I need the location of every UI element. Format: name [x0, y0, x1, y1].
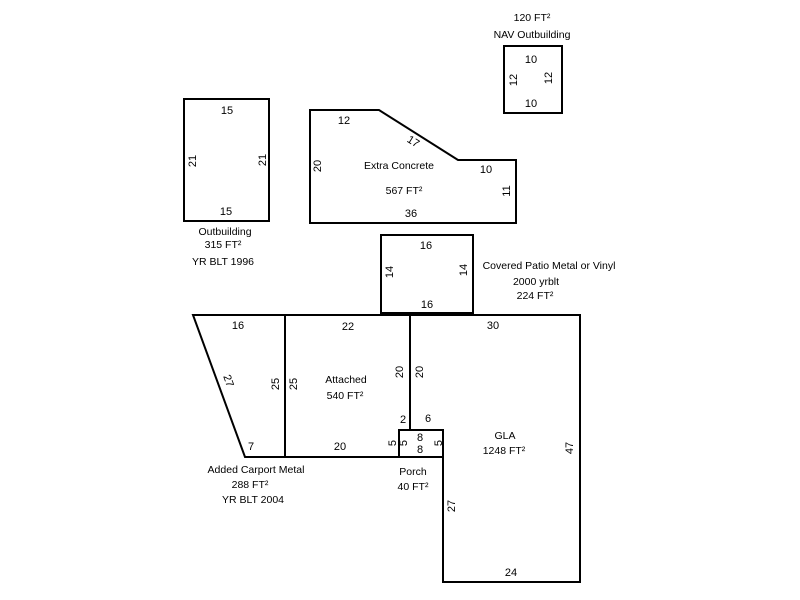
covered-patio-dim-left: 14 — [384, 266, 396, 278]
nav-outbuilding-dim-right: 12 — [543, 72, 555, 84]
carport-area-label: 288 FT² — [232, 479, 269, 491]
nav-outbuilding-group: 120 FT² NAV Outbuilding 10 12 12 10 — [494, 12, 571, 113]
extra-concrete-dim-right: 11 — [501, 185, 513, 196]
outbuilding-group: 15 21 21 15 Outbuilding 315 FT² YR BLT 1… — [184, 99, 269, 268]
extra-concrete-dim-top: 12 — [338, 115, 350, 127]
property-sketch-canvas: 120 FT² NAV Outbuilding 10 12 12 10 15 2… — [0, 0, 800, 600]
attached-name-label: Attached — [325, 374, 367, 386]
covered-patio-area-label: 224 FT² — [517, 290, 554, 302]
porch-area-label: 40 FT² — [398, 481, 429, 493]
gla-dim-left: 20 — [414, 366, 426, 378]
outbuilding-dim-right: 21 — [257, 154, 269, 166]
extra-concrete-name-label: Extra Concrete — [364, 160, 434, 172]
nav-outbuilding-name-label: NAV Outbuilding — [494, 29, 571, 41]
carport-dim-diagonal: 27 — [220, 373, 235, 389]
covered-patio-group: 16 14 14 16 Covered Patio Metal or Vinyl… — [381, 235, 615, 313]
outbuilding-dim-bottom: 15 — [220, 206, 232, 218]
extra-concrete-dim-left: 20 — [312, 160, 324, 172]
gla-dim-bottom: 24 — [505, 567, 517, 579]
gla-dim-notch: 6 — [425, 413, 431, 425]
porch-dim-top: 8 — [417, 432, 423, 444]
nav-outbuilding-dim-bottom: 10 — [525, 98, 537, 110]
gla-group: 20 6 30 GLA 1248 FT² 47 27 24 — [410, 315, 580, 582]
covered-patio-dim-right: 14 — [458, 264, 470, 276]
attached-outline — [285, 315, 410, 457]
sketch-svg: 120 FT² NAV Outbuilding 10 12 12 10 15 2… — [0, 0, 800, 600]
porch-group: 8 8 5 5 5 Porch 40 FT² — [387, 430, 445, 493]
attached-group: 22 25 Attached 540 FT² 20 20 2 — [285, 315, 410, 457]
porch-dim-bottom: 8 — [417, 444, 423, 456]
attached-area-label: 540 FT² — [327, 390, 364, 402]
outbuilding-year-label: YR BLT 1996 — [192, 256, 254, 268]
covered-patio-dim-top: 16 — [420, 240, 432, 252]
attached-dim-bottom: 20 — [334, 441, 346, 453]
carport-dim-top: 16 — [232, 320, 244, 332]
covered-patio-year-label: 2000 yrblt — [513, 276, 559, 288]
outbuilding-area-label: 315 FT² — [205, 239, 242, 251]
carport-year-label: YR BLT 2004 — [222, 494, 284, 506]
extra-concrete-dim-step: 10 — [480, 164, 492, 176]
carport-dim-bottom: 7 — [248, 441, 254, 453]
outbuilding-dim-left: 21 — [187, 155, 199, 167]
extra-concrete-area-label: 567 FT² — [386, 185, 423, 197]
extra-concrete-group: 12 17 20 Extra Concrete 10 11 567 FT² 36 — [310, 110, 516, 223]
covered-patio-dim-bottom: 16 — [421, 299, 433, 311]
outbuilding-name-label: Outbuilding — [198, 226, 251, 238]
attached-dim-notch: 2 — [400, 414, 406, 426]
covered-patio-name-label: Covered Patio Metal or Vinyl — [483, 260, 616, 272]
nav-outbuilding-dim-left: 12 — [508, 74, 520, 86]
nav-outbuilding-dim-top: 10 — [525, 54, 537, 66]
gla-area-label: 1248 FT² — [483, 445, 526, 457]
attached-dim-right: 20 — [394, 366, 406, 378]
nav-outbuilding-area-label: 120 FT² — [514, 12, 551, 24]
gla-dim-lower-left: 27 — [446, 500, 458, 512]
gla-dim-right: 47 — [564, 442, 576, 454]
extra-concrete-dim-bottom: 36 — [405, 208, 417, 220]
carport-name-label: Added Carport Metal — [208, 464, 305, 476]
attached-dim-top: 22 — [342, 321, 354, 333]
carport-group: 16 27 25 7 Added Carport Metal 288 FT² Y… — [193, 315, 304, 506]
porch-dim-right: 5 — [433, 440, 445, 446]
carport-dim-right: 25 — [270, 378, 282, 390]
porch-dim-left: 5 — [398, 440, 410, 446]
outbuilding-dim-top: 15 — [221, 105, 233, 117]
gla-dim-top: 30 — [487, 320, 499, 332]
attached-dim-left: 25 — [288, 378, 300, 390]
porch-name-label: Porch — [399, 466, 427, 478]
gla-name-label: GLA — [494, 430, 515, 442]
